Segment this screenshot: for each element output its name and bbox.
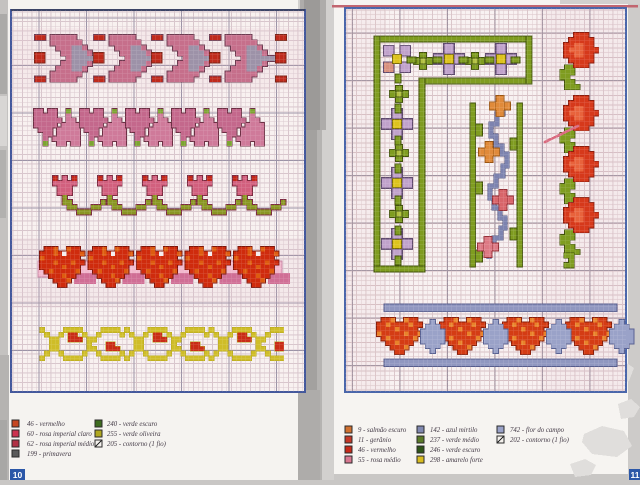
svg-text:46 - vermelho: 46 - vermelho	[358, 447, 396, 454]
svg-text:205 - contorno (1 fio): 205 - contorno (1 fio)	[107, 441, 167, 448]
svg-text:9 - salmão escuro: 9 - salmão escuro	[358, 427, 407, 434]
svg-text:55 - rosa médio: 55 - rosa médio	[358, 457, 401, 464]
svg-text:298 - amarelo forte: 298 - amarelo forte	[430, 457, 483, 464]
svg-text:246 - verde escuro: 246 - verde escuro	[430, 447, 481, 454]
svg-text:60 - rosa imperial claro: 60 - rosa imperial claro	[27, 431, 92, 438]
svg-text:199 - primavera: 199 - primavera	[27, 451, 72, 458]
svg-text:142 - azul mirtilo: 142 - azul mirtilo	[430, 427, 478, 434]
svg-text:202 - contorno (1 fio): 202 - contorno (1 fio)	[510, 437, 570, 444]
svg-text:11 - gerânio: 11 - gerânio	[358, 437, 392, 444]
svg-text:62 - rosa imperial médio: 62 - rosa imperial médio	[27, 441, 95, 448]
svg-text:10: 10	[13, 470, 23, 480]
svg-text:240 - verde escuro: 240 - verde escuro	[107, 421, 158, 428]
svg-text:255 - verde oliveira: 255 - verde oliveira	[107, 431, 161, 438]
svg-text:237 - verde médio: 237 - verde médio	[430, 437, 480, 444]
svg-text:11: 11	[631, 470, 640, 480]
svg-text:742 - flor do campo: 742 - flor do campo	[510, 427, 565, 434]
svg-text:46 - vermelho: 46 - vermelho	[27, 421, 65, 428]
